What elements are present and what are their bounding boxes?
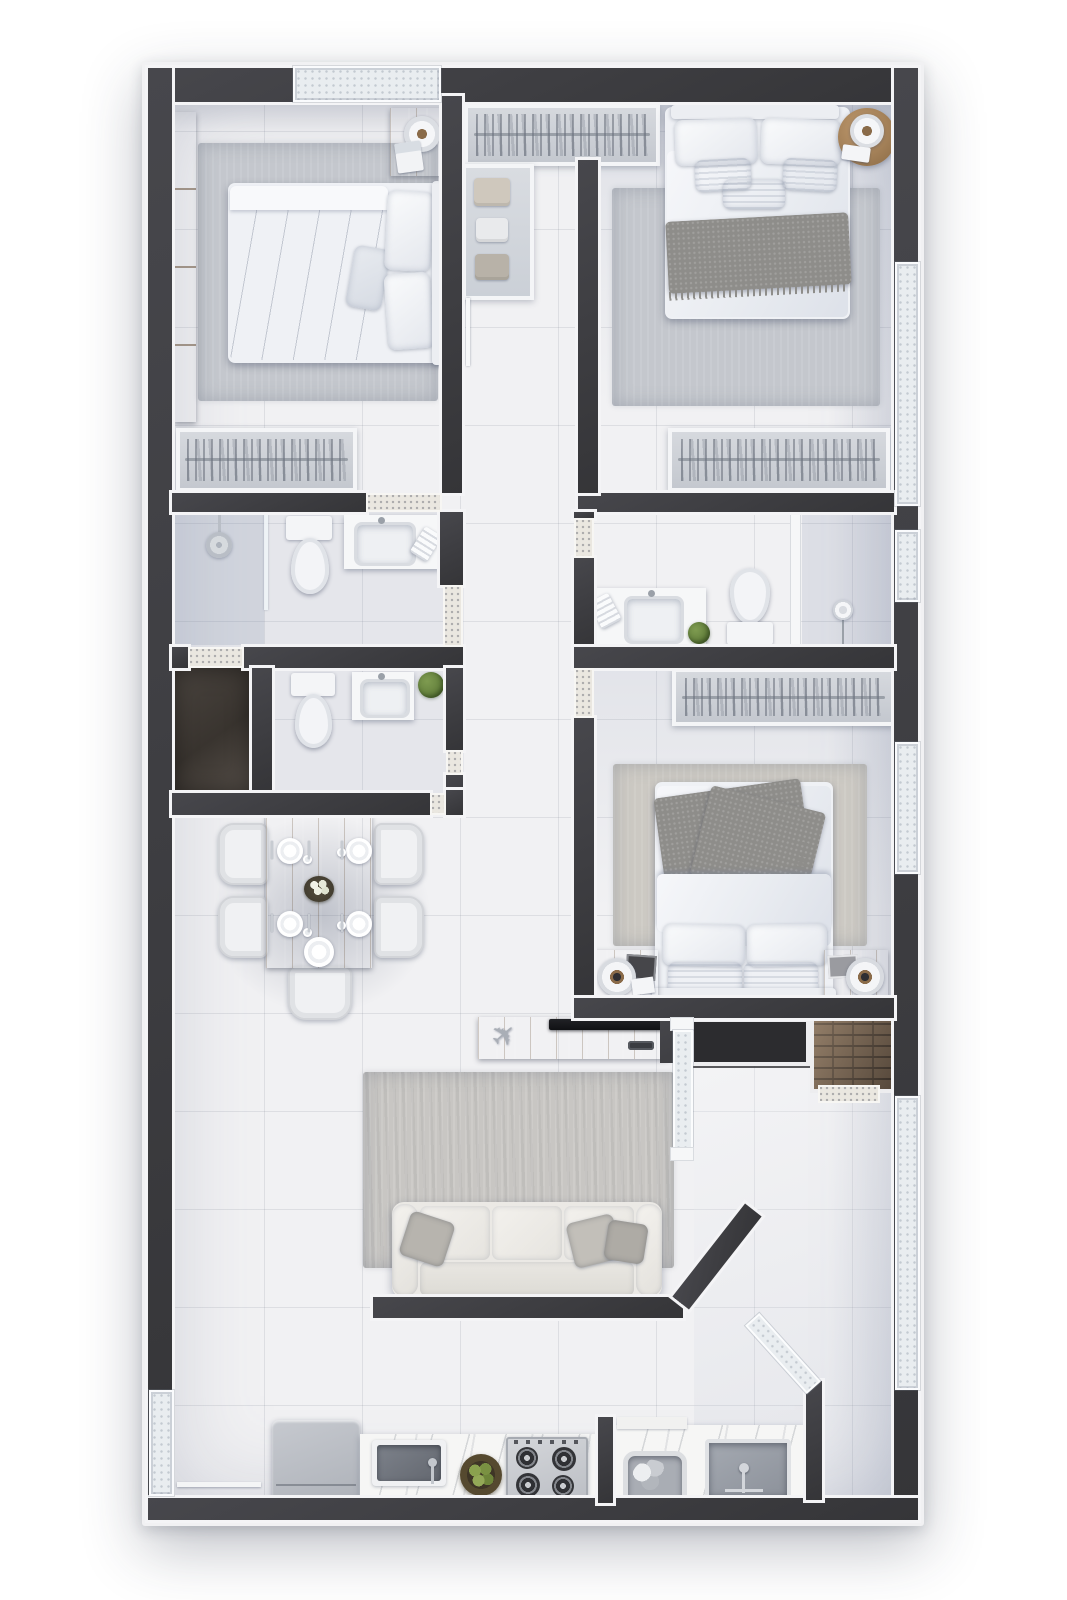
folded-clothes-2: [476, 218, 508, 242]
stove-knobs: [514, 1440, 580, 1444]
plate-1: [277, 838, 303, 864]
sofa-seat-2: [492, 1206, 562, 1260]
bath1-shower-head: [206, 532, 232, 558]
burner-4: [552, 1475, 574, 1497]
threshold-bath1-door: [443, 585, 463, 647]
kitchen-faucet-stem: [431, 1466, 434, 1484]
wall-left: [148, 68, 172, 1520]
walkin-door-leaf: [466, 298, 470, 366]
bath1-shower-glass: [264, 514, 268, 610]
bedroom3-pillow-2: [747, 923, 828, 966]
plate-2: [346, 838, 372, 864]
plate-4: [346, 911, 372, 937]
bedroom2-knit-throw: [665, 212, 852, 293]
window-left-kitchen: [149, 1390, 174, 1496]
bedroom2-headboard: [671, 105, 839, 119]
laundry-counter: [613, 1425, 806, 1502]
burner-3: [516, 1473, 540, 1497]
wall-hall-pier: [446, 790, 463, 815]
bath3-floor-lamp: [833, 600, 853, 620]
bedroom2-closet-rack: [668, 428, 890, 492]
plate-5: [304, 937, 334, 967]
bedroom1-pillow-1: [384, 190, 434, 272]
dining-chair-left-1: [218, 823, 268, 885]
window-right-bedroom3: [895, 742, 920, 874]
bath2-toilet-bowl: [295, 694, 332, 748]
wall-storage-right: [252, 668, 272, 793]
laundry-faucet-cross: [725, 1489, 763, 1492]
cutlery-3: [341, 841, 343, 859]
walkin-shelf-unit: [462, 164, 534, 300]
bedroom2-bed: [665, 107, 850, 319]
balcony-sliding-glass: [673, 1030, 693, 1152]
cutlery-1: [271, 841, 273, 859]
bedroom3-bed: [655, 782, 833, 1000]
wall-bottom: [148, 1498, 918, 1520]
wall-bathrow-bottom: [172, 793, 430, 815]
airplane-decor-icon: ✈: [485, 1016, 524, 1055]
bath3-basin: [624, 596, 684, 644]
wall-row1-right: [578, 493, 894, 512]
dining-chair-bottom: [288, 966, 352, 1020]
bedroom2-pillow-5: [723, 179, 785, 209]
balcony-threshold: [818, 1085, 880, 1103]
bedroom3-polaroid: [631, 977, 655, 996]
room-bathroom-3: [574, 512, 894, 647]
bedroom1-magazine: [394, 140, 424, 173]
wall-bath1-bottom-a: [172, 647, 188, 668]
cutlery-4: [271, 914, 273, 932]
balcony-door-frame-bottom: [671, 1148, 693, 1160]
bath3-vanity: [584, 588, 706, 645]
dining-chair-right-2: [374, 896, 424, 958]
cutlery-6: [341, 914, 343, 932]
sofa-pillow-right-2: [603, 1219, 649, 1265]
bath3-faucet: [648, 590, 655, 597]
bath3-toilet-bowl: [730, 568, 770, 624]
laundry-counter-back: [617, 1417, 687, 1429]
bedroom1-duvet-fold: [230, 186, 388, 210]
cutlery-5: [308, 914, 310, 932]
threshold-bedroom1-door: [366, 493, 442, 512]
bath1-toilet-tank: [286, 516, 332, 540]
bedroom1-closet-rack: [176, 428, 357, 492]
bath3-shower-floor: [802, 514, 892, 645]
bedroom3-pillow-1: [663, 923, 746, 966]
bedroom1-bed: [228, 183, 444, 363]
room-bathroom-2: [272, 668, 446, 793]
room-bathroom-1: [172, 512, 462, 647]
threshold-storage-door: [188, 647, 244, 668]
bath3-plant: [688, 622, 710, 644]
dining-chair-right-1: [374, 823, 424, 885]
wall-bath1-bottom-b: [244, 647, 463, 668]
room-bedroom-2: [598, 96, 894, 496]
laundry-clothes: [629, 1456, 671, 1494]
wall-bedroom1-right: [442, 96, 462, 493]
service-shaft: [690, 1018, 810, 1066]
folded-clothes-3: [475, 254, 509, 280]
burner-2: [552, 1447, 576, 1471]
window-right-bath3: [895, 530, 920, 602]
bath2-faucet: [378, 673, 385, 680]
brick-shaft: [810, 1013, 902, 1093]
room-bedroom-3: [574, 668, 894, 1020]
threshold-bedroom3-door: [574, 668, 594, 718]
bath3-floor-lamp-pole: [842, 616, 844, 644]
bedroom1-pillow-2: [383, 271, 434, 350]
room-bedroom-1: [166, 96, 466, 496]
threshold-hall-dining: [430, 793, 446, 815]
floor-plan-scene: ✈: [0, 0, 1067, 1600]
wall-bedroom2-left: [578, 160, 598, 493]
bath3-toilet-tank: [727, 622, 773, 645]
cutlery-2: [308, 841, 310, 859]
window-right-balcony: [895, 1096, 920, 1390]
threshold-bath3-door: [574, 518, 594, 558]
bath1-faucet: [378, 517, 385, 524]
wall-top: [148, 68, 918, 102]
sofa-back: [420, 1262, 634, 1296]
fridge-door-line: [276, 1484, 356, 1486]
tv-console: ✈: [478, 1017, 668, 1059]
window-right-bedroom2: [895, 262, 920, 506]
bath2-vanity: [352, 672, 414, 720]
threshold-bath2-door: [446, 750, 463, 775]
bath2-basin: [360, 679, 410, 718]
wall-bedroom1-bottom: [172, 493, 366, 512]
window-top: [293, 66, 441, 102]
bath1-basin: [354, 522, 416, 566]
wall-bedroom3-bottom: [574, 998, 894, 1018]
folded-clothes-1: [474, 178, 510, 206]
bedroom1-wardrobe-panel: [174, 112, 196, 422]
wall-laundry-left: [598, 1417, 613, 1503]
bath2-plant: [418, 672, 444, 698]
fruit-bowl-fruits: [466, 1460, 496, 1490]
bath3-partition: [791, 512, 800, 647]
dining-table: [266, 815, 372, 968]
bath1-vanity: [344, 515, 440, 569]
bedroom2-table-lamp: [850, 114, 884, 148]
wall-bath3-bottom: [574, 647, 894, 668]
plate-3: [277, 911, 303, 937]
kitchen-base-ledge: [177, 1482, 261, 1487]
refrigerator: [272, 1420, 360, 1502]
dining-area: [172, 815, 462, 1025]
wall-bath1-right: [440, 512, 463, 585]
bedroom3-speaker-right: [846, 958, 884, 996]
bath2-toilet-tank: [291, 673, 335, 696]
centerpiece-flowers: [307, 878, 331, 898]
remote-control: [628, 1041, 654, 1050]
tv: [549, 1019, 665, 1030]
bath1-shower-arm: [218, 512, 221, 534]
bedroom3-closet-rack: [672, 668, 895, 726]
wall-sofa-back: [373, 1297, 683, 1318]
gas-stove: [506, 1437, 588, 1501]
burner-1: [516, 1447, 538, 1469]
wall-laundry-right: [806, 1381, 822, 1500]
sofa: [392, 1202, 662, 1298]
storage-closet: [172, 668, 252, 793]
kitchen-sink: [372, 1440, 446, 1486]
wall-bedroom3-left: [574, 718, 594, 1000]
dining-chair-left-2: [218, 896, 268, 958]
wall-bath2-right-a: [446, 668, 463, 750]
kitchen-counter: [360, 1434, 598, 1500]
bedroom3-speaker-left: [598, 958, 636, 996]
bath1-toilet-bowl: [291, 538, 329, 594]
bedroom2-pillow-4: [782, 158, 838, 193]
balcony-door-frame-top: [671, 1018, 693, 1030]
wall-bath3-left-b: [574, 558, 594, 647]
